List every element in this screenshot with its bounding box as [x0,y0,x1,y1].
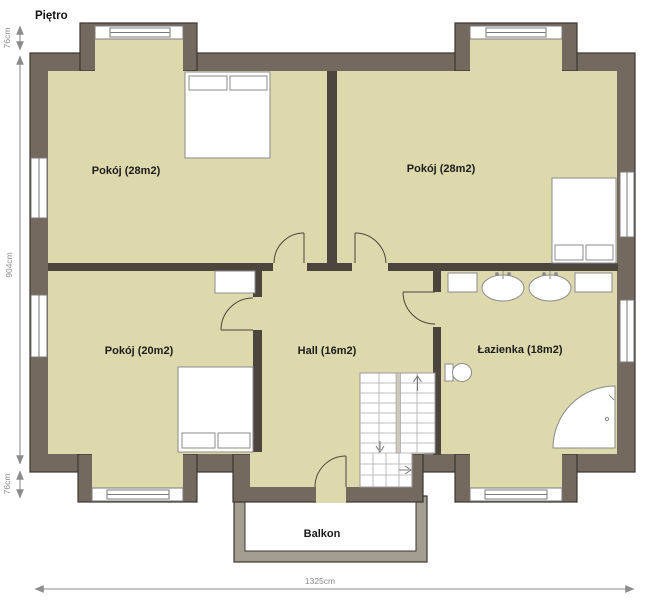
label-room-top-right: Pokój (28m2) [407,163,476,175]
dim-label-left-bay-bottom: 76cm [2,474,12,495]
wall-v-bath-upper [433,271,441,292]
bay-neck-bottom-right [470,450,562,488]
bath-cabinet-left [448,273,477,292]
pillow [230,76,267,90]
floor-plan-canvas: 76cm 904cm 76cm 1325cm Piętro Pokój (28m… [0,0,652,600]
pillow [189,76,227,90]
pillow [218,433,250,448]
dim-label-bottom: 1325cm [305,576,335,586]
label-hall: Hall (16m2) [298,345,357,357]
balcony-door-threshold [316,487,346,503]
window-right-1 [620,172,634,237]
pillow [555,245,583,260]
window-bay-bottom-left [92,488,183,501]
label-balcony: Balkon [304,528,341,540]
pillow [182,433,215,448]
label-room-bottom-left: Pokój (20m2) [105,345,174,357]
bay-neck-bottom-left [92,450,183,488]
pillow [586,245,613,260]
window-bay-top-right [470,26,562,39]
bed-room-bottom-left [178,367,253,452]
window-left-2 [31,295,47,357]
wall-v-room20-lower [253,330,262,452]
bay-neck-top-left [95,39,183,73]
page-title: Piętro [35,10,68,22]
bath-cabinet-right [575,273,612,292]
dim-label-left-main: 904cm [4,252,14,278]
window-bay-bottom-right [470,488,562,501]
label-bathroom: Łazienka (18m2) [478,344,563,356]
wall-h-left [48,263,273,271]
floor-plan: 76cm 904cm 76cm 1325cm Piętro Pokój (28m… [0,0,652,600]
dim-label-left-bay-top: 76cm [2,28,12,49]
bed-room-top-left [185,72,270,158]
wall-h-right [388,263,618,271]
label-room-top-left: Pokój (28m2) [92,165,161,177]
stair-divider [396,373,401,453]
bed-room-top-right [552,178,616,263]
window-left-1 [31,158,47,218]
bay-neck-top-right [470,39,562,73]
window-bay-top-left [95,26,183,39]
wall-v-bedrooms [327,71,337,271]
window-right-2 [620,300,634,362]
toilet [445,364,472,382]
wardrobe [215,271,255,293]
